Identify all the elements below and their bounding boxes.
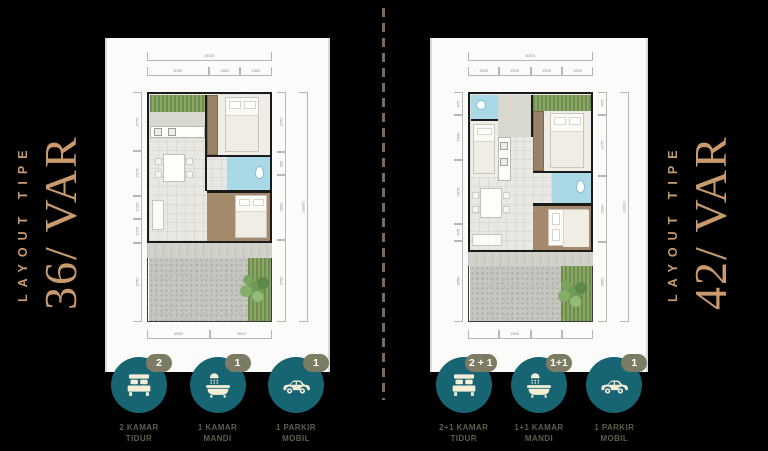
dimension-left-chain: 2775 2075 1025 1075 3750 bbox=[133, 92, 142, 322]
count-badge: 2 + 1 bbox=[465, 354, 497, 372]
dimension-top-overall: 6000 bbox=[468, 52, 593, 61]
dining-table bbox=[163, 154, 185, 182]
count-badge: 1+1 bbox=[546, 354, 572, 372]
car-icon bbox=[280, 369, 312, 401]
yard-carport bbox=[149, 258, 248, 321]
bed-furniture bbox=[550, 113, 584, 168]
dim-segment bbox=[468, 330, 499, 339]
dim-segment: 1500 bbox=[209, 67, 241, 76]
dim-segment: 3000 bbox=[210, 330, 273, 339]
porch bbox=[468, 252, 593, 266]
toilet bbox=[255, 166, 264, 179]
dim-segment: 950 bbox=[277, 152, 286, 174]
dim-segment: 1950 bbox=[454, 115, 463, 159]
dim-segment: 975 bbox=[454, 92, 463, 115]
dim-segment: 2750 bbox=[277, 92, 286, 152]
layout-kicker-left: LAYOUT TIPE bbox=[16, 22, 30, 424]
dim-segment: 3750 bbox=[133, 243, 142, 322]
dim-segment: 3000 bbox=[277, 175, 286, 241]
dim-segment: 3650 bbox=[598, 242, 607, 322]
feature-label: 1+1 KAMAR MANDI bbox=[514, 422, 563, 444]
dimension-bottom-segments: 1500 bbox=[468, 330, 593, 339]
bed-icon bbox=[448, 369, 480, 401]
bed-icon bbox=[123, 369, 155, 401]
layout-type-left: 36/ VAR bbox=[34, 22, 87, 424]
floor-plan-36 bbox=[147, 92, 272, 322]
room-garden-strip bbox=[150, 95, 205, 112]
dim-segment: 675 bbox=[454, 224, 463, 241]
feature-label: 1 KAMAR MANDI bbox=[198, 422, 237, 444]
bed-furniture bbox=[473, 124, 495, 174]
feature-bedrooms: 2 + 1 2+1 KAMAR TIDUR bbox=[426, 357, 501, 444]
feature-bedrooms: 2 2 KAMAR TIDUR bbox=[101, 357, 177, 444]
layout-title-left: LAYOUT TIPE 36/ VAR bbox=[12, 22, 89, 424]
washbasin bbox=[476, 100, 486, 110]
dim-segment: 1500 bbox=[240, 67, 272, 76]
feature-bathrooms: 1 1 KAMAR MANDI bbox=[180, 357, 256, 444]
dimension-top-segments: 1500 1500 1500 1500 bbox=[468, 67, 593, 76]
dim-segment: 1500 bbox=[499, 67, 530, 76]
chair bbox=[503, 192, 510, 199]
tree-illustration bbox=[556, 278, 590, 312]
feature-row-42: 2 + 1 2+1 KAMAR TIDUR 1+1 bbox=[426, 357, 652, 444]
feature-circle: 2 + 1 bbox=[436, 357, 492, 413]
feature-circle: 1+1 bbox=[511, 357, 567, 413]
layout-type-right: 42/ VAR bbox=[684, 22, 737, 424]
count-badge: 1 bbox=[225, 354, 251, 372]
dim-segment: 6000 bbox=[147, 52, 272, 61]
dim-segment bbox=[531, 330, 562, 339]
dimension-right-chain: 2750 950 3000 3750 bbox=[277, 92, 286, 322]
bath-icon bbox=[523, 369, 555, 401]
floor-plan-card-42: 6000 1500 1500 1500 1500 975 1950 2875 6… bbox=[430, 38, 648, 372]
room-garden-strip bbox=[533, 95, 591, 111]
feature-circle: 2 bbox=[111, 357, 167, 413]
dining-table bbox=[480, 188, 502, 218]
dim-segment: 1025 bbox=[133, 196, 142, 219]
sofa bbox=[152, 200, 164, 230]
dim-segment: 3000 bbox=[147, 67, 209, 76]
chair bbox=[155, 171, 162, 178]
dim-segment: 3750 bbox=[277, 240, 286, 322]
dimension-top-overall: 6000 bbox=[147, 52, 272, 61]
layout-kicker-right: LAYOUT TIPE bbox=[666, 22, 680, 424]
floor-plan-42 bbox=[468, 92, 593, 322]
wardrobe bbox=[533, 111, 544, 171]
bed-furniture bbox=[225, 97, 259, 152]
stove-icon bbox=[154, 128, 162, 136]
dim-segment: 3650 bbox=[454, 241, 463, 322]
feature-row-36: 2 2 KAMAR TIDUR 1 bbox=[101, 357, 334, 444]
chair bbox=[472, 192, 479, 199]
bed-furniture bbox=[235, 195, 267, 238]
divider-dashed-line bbox=[382, 8, 385, 400]
toilet bbox=[576, 180, 585, 193]
dim-segment: 2075 bbox=[133, 151, 142, 196]
dimension-top-segments: 3000 1500 1500 bbox=[147, 67, 272, 76]
dim-segment: 1500 bbox=[562, 67, 593, 76]
dimension-bottom-segments: 3000 3000 bbox=[147, 330, 272, 339]
feature-label: 2 KAMAR TIDUR bbox=[119, 422, 158, 444]
dimension-right-overall: 10000 bbox=[620, 92, 629, 322]
dim-segment: 10000 bbox=[620, 92, 629, 322]
sink-icon bbox=[500, 158, 508, 166]
bed-furniture bbox=[548, 209, 588, 246]
porch bbox=[147, 243, 272, 258]
count-badge: 2 bbox=[146, 354, 172, 372]
feature-parking: 1 1 PARKIR MOBIL bbox=[577, 357, 652, 444]
stove-icon bbox=[500, 142, 508, 150]
dim-segment: 2775 bbox=[133, 92, 142, 151]
dim-segment: 1075 bbox=[133, 219, 142, 243]
chair bbox=[186, 171, 193, 178]
feature-label: 2+1 KAMAR TIDUR bbox=[439, 422, 488, 444]
feature-circle: 1 bbox=[586, 357, 642, 413]
dimension-right-overall: 10000 bbox=[299, 92, 308, 322]
car-icon bbox=[598, 369, 630, 401]
sofa bbox=[472, 234, 502, 246]
layout-title-right: LAYOUT TIPE 42/ VAR bbox=[662, 22, 739, 424]
dim-segment: 6000 bbox=[468, 52, 593, 61]
chair bbox=[155, 158, 162, 165]
dimension-left-chain: 975 1950 2875 675 3650 bbox=[454, 92, 463, 322]
dim-segment: 3000 bbox=[147, 330, 210, 339]
dim-segment: 1500 bbox=[499, 330, 530, 339]
dim-segment: 1500 bbox=[468, 67, 499, 76]
dim-segment: 10000 bbox=[299, 92, 308, 322]
count-badge: 1 bbox=[303, 354, 329, 372]
bath-icon bbox=[202, 369, 234, 401]
dim-segment bbox=[562, 330, 593, 339]
yard-carport bbox=[470, 266, 561, 321]
chair bbox=[472, 206, 479, 213]
sink-icon bbox=[168, 128, 176, 136]
chair bbox=[503, 206, 510, 213]
tree-illustration bbox=[238, 273, 272, 307]
wardrobe bbox=[207, 95, 218, 155]
chair bbox=[186, 158, 193, 165]
dim-segment: 3000 bbox=[598, 176, 607, 242]
feature-circle: 1 bbox=[268, 357, 324, 413]
feature-parking: 1 1 PARKIR MOBIL bbox=[258, 357, 334, 444]
dim-segment: 975 bbox=[598, 92, 607, 115]
dimension-right-chain: 975 2775 3000 3650 bbox=[598, 92, 607, 322]
dim-segment: 2775 bbox=[598, 115, 607, 176]
dim-segment: 1500 bbox=[531, 67, 562, 76]
floor-plan-card-36: 6000 3000 1500 1500 2775 2075 1025 1075 … bbox=[105, 38, 330, 372]
feature-label: 1 PARKIR MOBIL bbox=[276, 422, 316, 444]
room-service bbox=[498, 95, 531, 137]
count-badge: 1 bbox=[621, 354, 647, 372]
feature-bathrooms: 1+1 1+1 KAMAR MANDI bbox=[501, 357, 576, 444]
feature-circle: 1 bbox=[190, 357, 246, 413]
dim-segment: 2875 bbox=[454, 160, 463, 224]
feature-label: 1 PARKIR MOBIL bbox=[594, 422, 634, 444]
